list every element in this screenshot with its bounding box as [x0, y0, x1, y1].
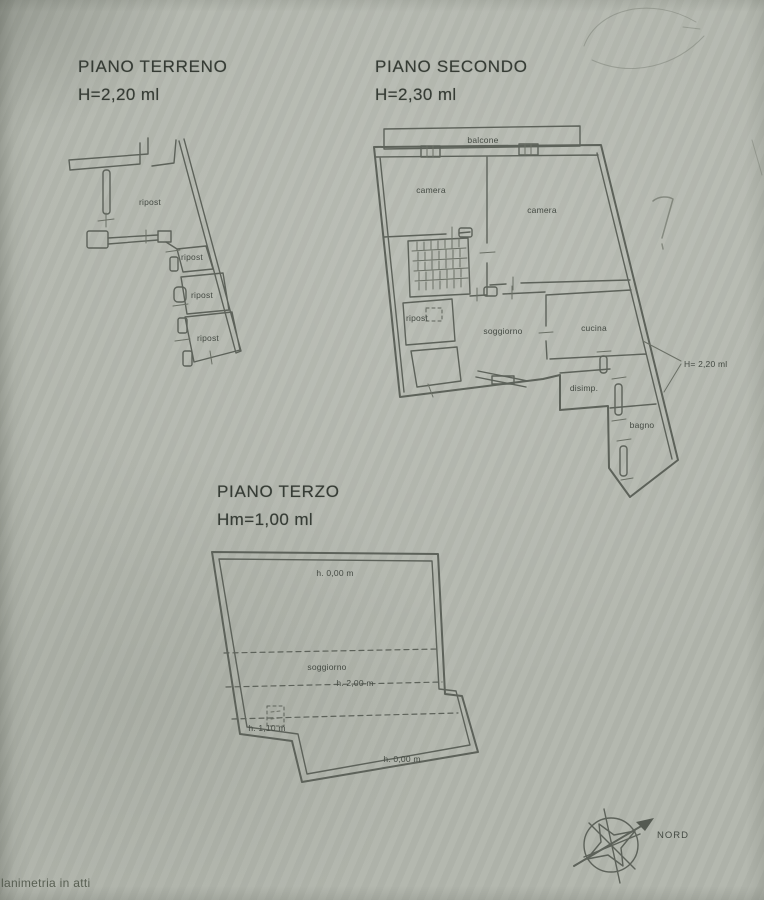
room-label-ripost-1: ripost [139, 197, 161, 207]
height-label-low: h. 1,10 m [248, 723, 285, 733]
terreno-door-jamb [170, 257, 178, 271]
compass-ray [584, 834, 640, 857]
pencil-dash [683, 27, 700, 29]
height-label-bottom: h. 0,00 m [383, 754, 420, 764]
scan-artifacts [584, 8, 762, 249]
terreno-wall-cap [87, 231, 108, 248]
room-label-ripost-2: ripost [181, 252, 203, 262]
stairs-hatch [417, 239, 461, 290]
height-label-mid: h. 2,00 m [336, 678, 373, 688]
plan-piano-terreno: ripost ripost ripost ripost [69, 138, 241, 366]
terreno-wall-cap [103, 170, 110, 214]
terreno-wall-cap [158, 231, 171, 242]
terreno-door-jamb [183, 351, 192, 366]
room-label-soggiorno: soggiorno [483, 326, 522, 336]
hatch-marker [426, 308, 442, 321]
room-label-ripost-4: ripost [197, 333, 219, 343]
height-label-top: h. 0,00 m [316, 568, 353, 578]
terreno-walls [69, 138, 241, 362]
floorplan-drawing: ripost ripost ripost ripost balcone came… [0, 0, 764, 900]
secondo-inner-walls [376, 153, 672, 459]
compass-rose: NORD [574, 809, 689, 883]
room-label-soggiorno-terzo: soggiorno [307, 662, 346, 672]
room-label-cucina: cucina [581, 323, 607, 333]
room-label-disimp: disimp. [570, 383, 598, 393]
plan-piano-terzo: h. 0,00 m soggiorno h. 2,00 m h. 1,10 m … [212, 552, 478, 782]
wall-cap [615, 384, 622, 415]
plan-piano-secondo: balcone camera camera ripost soggiorno c… [374, 126, 727, 497]
pencil-arc [592, 36, 704, 68]
pencil-seven-mark [653, 197, 673, 249]
compass-north-label: NORD [657, 830, 689, 841]
secondo-door-ticks [427, 144, 633, 480]
compass-arrowhead-icon [636, 818, 654, 831]
room-label-balcone: balcone [467, 135, 498, 145]
wall-cap [600, 356, 607, 373]
wall-cap [620, 446, 627, 476]
height-annotation: H= 2,20 ml [684, 359, 727, 369]
room-label-camera-left: camera [416, 185, 446, 195]
pencil-stray-line [752, 140, 762, 175]
room-label-ripost: ripost [406, 313, 428, 323]
room-label-camera-right: camera [527, 205, 557, 215]
room-label-ripost-3: ripost [191, 290, 213, 300]
room-label-bagno: bagno [630, 420, 655, 430]
watermark-text: lanimetria in atti [1, 876, 90, 890]
pencil-arc [584, 8, 696, 46]
scanned-floorplan-page: PIANO TERRENO H=2,20 ml PIANO SECONDO H=… [0, 0, 764, 900]
